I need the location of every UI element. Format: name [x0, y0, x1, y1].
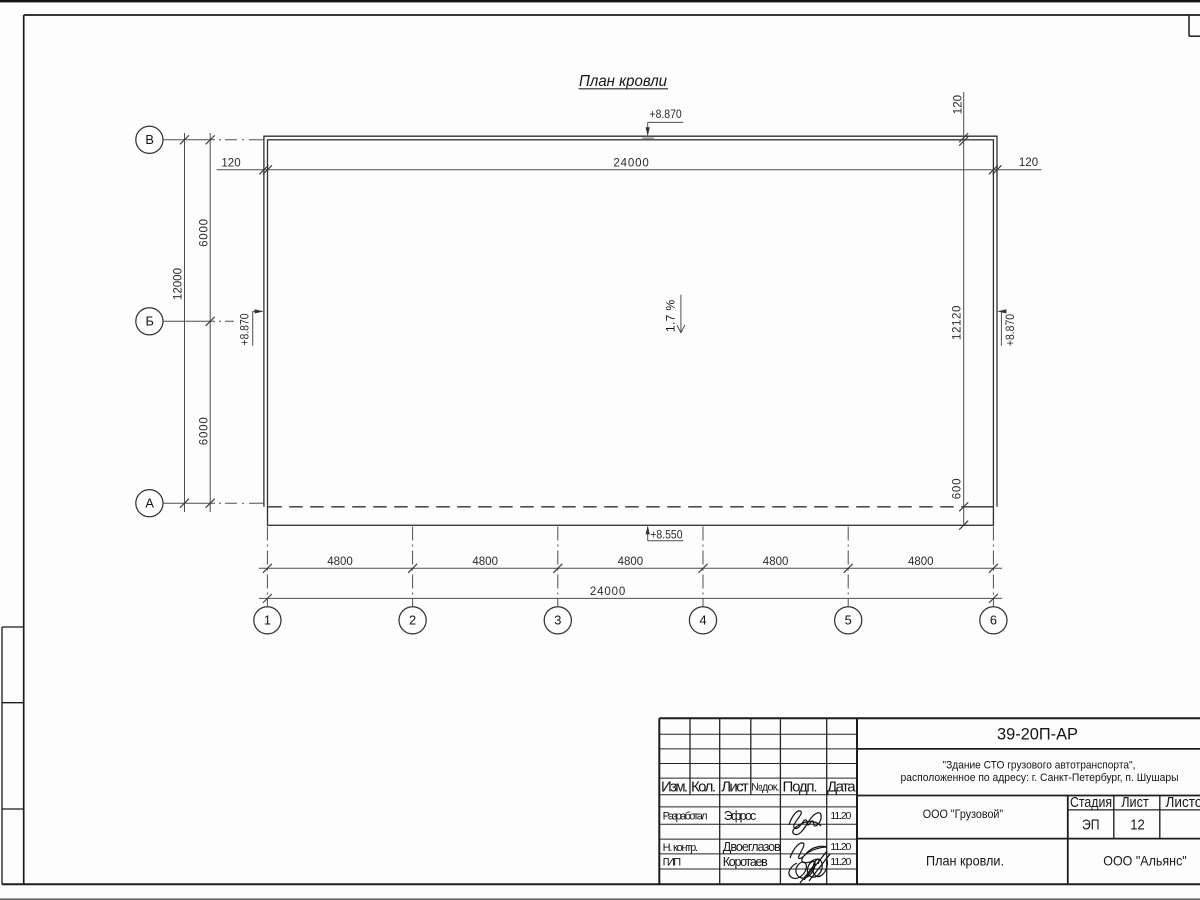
svg-text:4800: 4800	[472, 556, 498, 568]
svg-text:2: 2	[409, 613, 416, 628]
svg-text:4: 4	[699, 613, 706, 628]
svg-text:+8.870: +8.870	[1005, 314, 1017, 346]
svg-text:6: 6	[990, 613, 997, 628]
svg-text:№док.: №док.	[751, 782, 780, 794]
svg-text:расположенное по адресу: г. Са: расположенное по адресу: г. Санкт-Петерб…	[901, 772, 1179, 784]
svg-text:4800: 4800	[908, 556, 934, 568]
svg-text:План кровли: План кровли	[579, 73, 667, 90]
svg-text:Дата: Дата	[827, 779, 856, 796]
svg-text:ЭП: ЭП	[1082, 816, 1100, 833]
svg-text:Лист: Лист	[721, 779, 749, 796]
svg-text:12000: 12000	[173, 268, 185, 300]
svg-text:3: 3	[554, 613, 561, 628]
svg-text:12: 12	[1130, 816, 1145, 833]
svg-text:+8.550: +8.550	[650, 530, 682, 542]
svg-text:5: 5	[845, 613, 852, 628]
svg-text:Лист: Лист	[1121, 795, 1149, 811]
svg-text:4800: 4800	[618, 556, 644, 568]
svg-text:Подп.: Подп.	[783, 779, 818, 796]
svg-text:Листов: Листов	[1166, 795, 1200, 811]
svg-text:Кол.: Кол.	[691, 779, 716, 796]
svg-text:В: В	[145, 132, 154, 147]
svg-text:+8.870: +8.870	[239, 313, 251, 345]
svg-text:Эфрос: Эфрос	[724, 809, 757, 823]
svg-text:Б: Б	[145, 314, 153, 329]
svg-text:ООО "Альянс": ООО "Альянс"	[1103, 852, 1187, 868]
svg-text:1.7 %: 1.7 %	[663, 299, 677, 332]
svg-text:А: А	[145, 496, 154, 511]
svg-text:4800: 4800	[763, 556, 789, 568]
svg-text:24000: 24000	[590, 586, 626, 598]
svg-text:4800: 4800	[327, 556, 353, 568]
svg-text:План кровли.: План кровли.	[926, 852, 1004, 868]
svg-text:Коротаев: Коротаев	[723, 855, 768, 869]
svg-text:Стадия: Стадия	[1070, 795, 1112, 811]
svg-text:Двоеглазов: Двоеглазов	[723, 840, 781, 854]
svg-text:11.20: 11.20	[830, 810, 851, 822]
svg-text:600: 600	[952, 478, 964, 500]
svg-text:ГИП: ГИП	[663, 857, 682, 869]
svg-text:11.20: 11.20	[830, 856, 851, 868]
svg-text:11.20: 11.20	[830, 841, 851, 853]
svg-text:"Здание СТО грузового автотран: "Здание СТО грузового автотранспорта",	[943, 760, 1136, 772]
svg-text:120: 120	[953, 95, 965, 114]
svg-text:6000: 6000	[198, 218, 210, 247]
svg-text:6000: 6000	[198, 416, 210, 445]
svg-text:1: 1	[264, 613, 271, 628]
svg-text:Разработал: Разработал	[663, 811, 708, 823]
svg-text:39-20П-АР: 39-20П-АР	[997, 726, 1078, 744]
svg-text:+8.870: +8.870	[650, 109, 682, 121]
svg-text:120: 120	[221, 157, 240, 169]
svg-text:Н. контр.: Н. контр.	[663, 842, 699, 854]
svg-text:24000: 24000	[613, 157, 649, 169]
svg-text:ООО "Грузовой": ООО "Грузовой"	[923, 807, 1004, 821]
svg-text:12120: 12120	[952, 305, 964, 340]
svg-text:120: 120	[1019, 157, 1038, 169]
svg-text:Изм.: Изм.	[661, 779, 688, 796]
